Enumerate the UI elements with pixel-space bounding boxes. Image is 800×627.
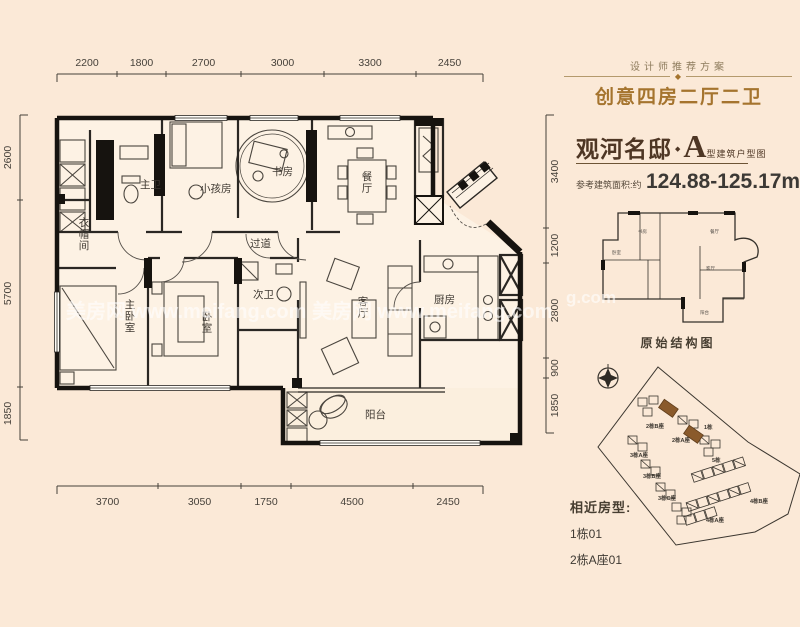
dimension-label: 3300 <box>358 57 382 69</box>
room-label-master-bath: 主卫 <box>140 179 161 191</box>
dimension-label: 3050 <box>188 496 212 508</box>
project-name-row: 观河名邸◆A型建筑户型图 <box>576 128 796 165</box>
room-label-corridor: 过道 <box>250 237 271 250</box>
similar-units: 相近房型: 1栋01 2栋A座01 <box>570 497 631 568</box>
similar-label: 相近房型: <box>570 497 631 516</box>
room-label-second-bath: 次卫 <box>253 288 274 301</box>
room-label-kids-room: 小孩房 <box>200 182 232 195</box>
ornament-divider: ◆ <box>564 72 792 81</box>
dimension-label: 2450 <box>436 496 460 508</box>
dimension-label: 3000 <box>271 57 295 69</box>
dimension-label: 2600 <box>2 146 14 170</box>
plan-title: 创意四房二厅二卫 <box>558 82 800 109</box>
designer-tagline: 设计师推荐方案 <box>558 58 800 73</box>
similar-item: 2栋A座01 <box>570 551 631 568</box>
dimension-label: 3700 <box>96 496 120 508</box>
room-label-cloakroom: 衣帽间 <box>79 216 90 252</box>
similar-item: 1栋01 <box>570 525 631 542</box>
entry-stairs <box>447 161 497 208</box>
area-value: 124.88-125.17m <box>646 170 800 193</box>
unit-letter: A <box>683 128 706 164</box>
floorplan-page: 2200180027003000330024503700305017504500… <box>0 0 800 627</box>
structure-caption: 原始结构图 <box>598 334 758 351</box>
dimension-label: 2450 <box>438 57 462 69</box>
project-name: 观河名邸 <box>576 137 672 162</box>
dimension-label: 1850 <box>2 402 14 426</box>
area-row: 参考建筑面积:约 124.88-125.17m2 <box>576 170 800 194</box>
elevator-shaft <box>415 196 443 224</box>
room-label-study: 书房 <box>272 165 293 178</box>
room-label-dining: 餐厅 <box>362 170 373 195</box>
dimension-label: 1750 <box>254 496 278 508</box>
dimension-label: 2700 <box>192 57 216 69</box>
info-panel: 设计师推荐方案 ◆ 创意四房二厅二卫 观河名邸◆A型建筑户型图 参考建筑面积:约… <box>558 0 800 627</box>
diamond-icon: ◆ <box>672 145 683 153</box>
dimension-label: 5700 <box>2 282 14 306</box>
diamond-icon: ◆ <box>670 72 686 81</box>
dimension-label: 4500 <box>340 496 364 508</box>
unit-suffix: 型建筑户型图 <box>707 149 767 159</box>
watermark-text: 美房网 www.meifang.com 美房网 www.meifang.com <box>66 299 552 323</box>
room-label-balcony: 阳台 <box>365 408 386 421</box>
dimension-label: 1800 <box>130 57 154 69</box>
area-label: 参考建筑面积:约 <box>576 180 642 190</box>
name-underline <box>576 163 748 164</box>
dimension-label: 2200 <box>75 57 99 69</box>
